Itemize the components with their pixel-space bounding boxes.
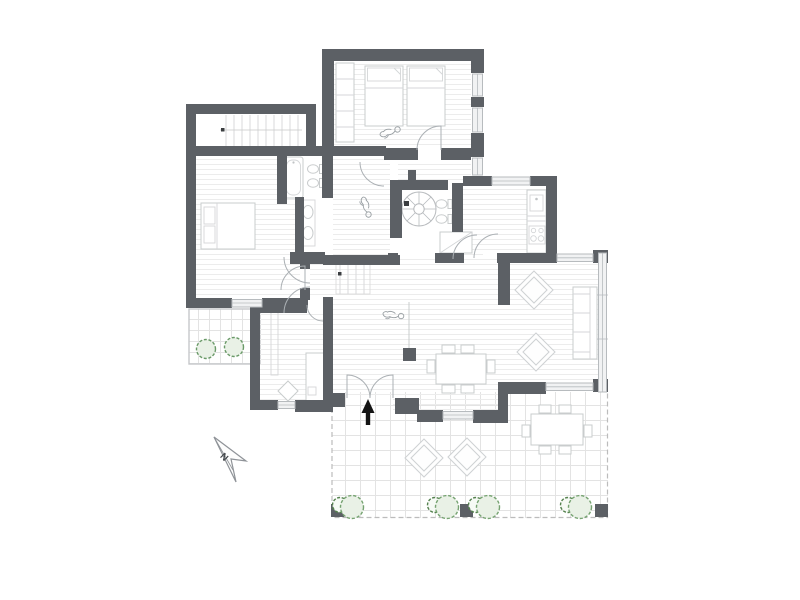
wall-segment [186,298,232,308]
wall-segment [417,410,443,422]
wall-segment [463,176,492,186]
wall-segment [295,197,304,257]
kitchen-counter [527,190,546,253]
wall-segment [186,146,286,156]
window [278,402,295,409]
wall-segment [471,49,484,73]
planter [225,338,244,357]
wall-segment [471,97,484,107]
wall-segment [546,176,557,263]
wall-segment [250,303,260,410]
wall-segment [498,253,510,305]
wall-segment [250,400,278,410]
bidet [308,179,324,188]
wall-segment [384,148,418,160]
column [403,348,416,361]
wall-segment [186,104,316,114]
sofa [573,287,597,359]
wall-segment [306,104,316,148]
wall-segment [186,104,196,308]
wall-segment [322,152,333,198]
window [492,177,530,185]
window [443,412,473,420]
planter [197,340,216,359]
window [232,300,262,308]
wall-segment [508,382,546,394]
pergola-post [595,504,608,517]
wall-segment [435,253,464,263]
floor-plan-drawing: N [0,0,800,600]
twin-bed-2 [407,66,445,126]
toilet [308,165,324,174]
wc2-toilet [436,200,452,209]
wall-segment [334,146,386,156]
floor-plan-canvas: N [0,0,800,600]
wall-segment [323,297,333,407]
wardrobe [336,63,354,142]
wall-segment [452,183,463,232]
wall-segment [441,148,471,160]
double-bed [201,203,255,249]
wall-segment [390,180,402,238]
wc2-bidet [436,215,452,224]
wall-segment [471,133,484,157]
window [473,74,483,96]
wall-segment [473,410,508,423]
wall-segment [322,49,483,61]
shower-tray [440,232,472,253]
north-arrow: N [214,437,246,482]
twin-bed-1 [365,66,403,126]
wall-segment [388,253,398,263]
wall-segment [395,398,419,414]
wall-segment [408,170,416,182]
window [473,108,483,132]
spiral-staircase [402,192,436,226]
wall-segment [322,49,334,152]
window [473,158,483,175]
